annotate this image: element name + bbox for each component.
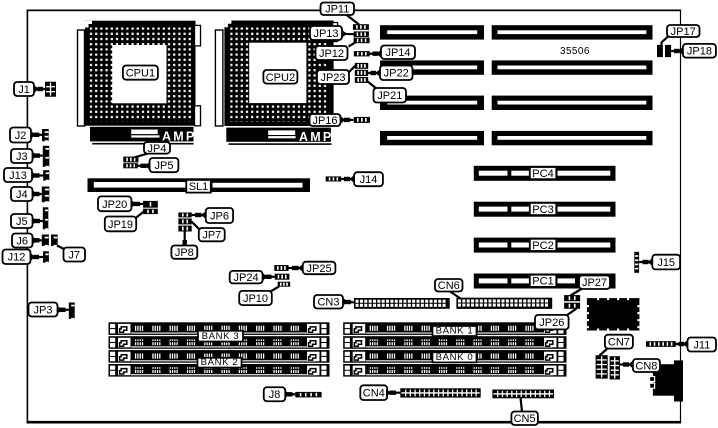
svg-text:JP13: JP13 [313,28,338,40]
svg-text:J11: J11 [693,340,710,352]
svg-text:J1: J1 [18,84,30,96]
svg-text:CN6: CN6 [438,280,460,292]
svg-text:PC4: PC4 [532,168,553,180]
svg-text:JP11: JP11 [325,4,349,16]
svg-text:CN8: CN8 [635,361,657,373]
svg-text:JP19: JP19 [108,219,133,231]
svg-text:CPU2: CPU2 [266,72,295,84]
svg-text:JP20: JP20 [102,199,127,211]
svg-text:JP23: JP23 [320,72,345,84]
svg-text:J5: J5 [16,216,28,228]
svg-text:BANK 1: BANK 1 [436,326,474,337]
svg-text:CN7: CN7 [608,337,630,349]
svg-text:JP25: JP25 [307,263,332,275]
svg-text:JP14: JP14 [385,47,410,59]
svg-text:JP27: JP27 [582,277,607,289]
svg-text:PC2: PC2 [532,240,553,252]
svg-text:JP18: JP18 [687,46,712,58]
svg-text:J15: J15 [657,257,675,269]
svg-text:J14: J14 [360,174,378,186]
svg-text:JP24: JP24 [234,272,259,284]
svg-text:JP10: JP10 [243,293,268,305]
svg-text:JP4: JP4 [148,143,167,155]
svg-text:35506: 35506 [560,46,590,57]
svg-text:CN3: CN3 [317,297,339,309]
svg-text:JP8: JP8 [175,247,194,259]
svg-text:CN5: CN5 [514,413,536,425]
svg-text:JP21: JP21 [377,90,402,102]
svg-text:PC1: PC1 [532,276,553,288]
svg-text:J7: J7 [68,250,80,262]
svg-text:CPU1: CPU1 [126,68,155,80]
svg-text:JP22: JP22 [384,68,409,80]
svg-text:PC3: PC3 [532,204,553,216]
svg-text:JP26: JP26 [539,317,564,329]
svg-text:J4: J4 [16,189,28,201]
svg-text:J2: J2 [15,130,27,142]
svg-text:J8: J8 [269,389,281,401]
svg-text:BANK 2: BANK 2 [201,357,239,368]
svg-text:BANK 3: BANK 3 [202,331,240,342]
svg-text:JP3: JP3 [34,305,53,317]
svg-text:BANK 0: BANK 0 [436,352,474,363]
svg-text:J12: J12 [8,252,26,264]
svg-text:AMP: AMP [299,130,333,144]
svg-text:CN4: CN4 [363,388,385,400]
svg-text:J13: J13 [9,170,27,182]
svg-text:JP7: JP7 [202,230,221,242]
svg-text:JP17: JP17 [671,26,696,38]
svg-text:J3: J3 [16,151,28,163]
svg-text:JP12: JP12 [319,48,344,60]
svg-text:J6: J6 [16,236,28,248]
svg-text:SL1: SL1 [189,181,209,193]
svg-text:JP5: JP5 [155,160,174,172]
svg-text:JP6: JP6 [210,211,229,223]
svg-text:JP16: JP16 [312,115,337,127]
